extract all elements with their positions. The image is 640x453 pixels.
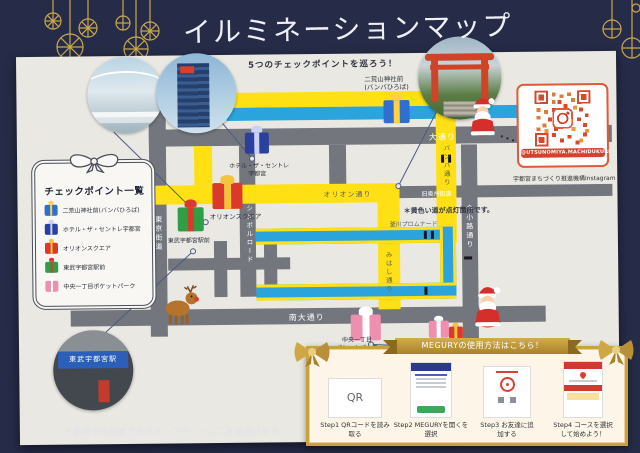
- instagram-handle: @UTSUNOMIYA.MACHIDUKURI: [521, 148, 605, 158]
- gift-icon-blue-yellow: [45, 205, 58, 216]
- gift-icon-orion-square: [212, 183, 242, 209]
- checkpoint-item: オリオンスクエア: [45, 242, 145, 254]
- station-sign: 東武宇都宮駅: [58, 351, 129, 369]
- step1-caption: Step1QRコードを読み取る: [317, 421, 393, 439]
- checkpoint-label: オリオンスクエア: [63, 243, 111, 253]
- step3-caption: Step3お友達に追加する: [478, 421, 536, 439]
- step4-screenshot-thumbnail: [563, 361, 603, 418]
- marker-label-line: (バンバひろば): [364, 83, 408, 91]
- marker-label-futaarayama: 二荒山神社前 (バンバひろば): [364, 75, 409, 92]
- checkpoint-label: 東武宇都宮駅前: [63, 262, 105, 271]
- steps-row: QR Step1QRコードを読み取る Step2MEGURYを開くを選択 St: [317, 361, 621, 439]
- qr-code: [534, 90, 591, 147]
- gift-icon-green: [45, 262, 58, 273]
- checkpoint-item: 東武宇都宮駅前: [45, 261, 145, 273]
- checkpoint-label: 二荒山神社前(バンバひろば): [63, 205, 140, 215]
- step3-screenshot-thumbnail: [483, 366, 531, 418]
- step-number: Step2: [394, 421, 413, 429]
- photo-hotel: [156, 53, 237, 134]
- step-item-4: Step4コースを選択して始めよう！: [545, 361, 621, 439]
- step-number: Step1: [320, 421, 339, 429]
- step-label: お友達に追加する: [497, 421, 533, 438]
- photo-tobu-station: 東武宇都宮駅: [53, 330, 134, 411]
- checkpoint-panel-title: チェックポイント一覧: [44, 183, 144, 198]
- step-number: Step4: [553, 421, 572, 429]
- marker-label-line: 中央一丁目: [342, 336, 372, 343]
- checkpoint-label: ホテル・ザ・セントレ宇都宮: [63, 224, 141, 234]
- poster-title: イルミネーションマップ: [183, 5, 484, 51]
- photo-orion-square: [87, 57, 164, 134]
- step-label: QRコードを読み取る: [341, 421, 390, 438]
- step2-screenshot-thumbnail: [410, 362, 452, 418]
- footnote: ＊期間中は何度でもスタンプラリーにご参加頂けます。: [64, 426, 288, 437]
- gift-icon-red: [45, 243, 58, 254]
- steps-panel: QR Step1QRコードを読み取る Step2MEGURYを開くを選択 St: [306, 346, 628, 446]
- instagram-icon: [553, 109, 572, 128]
- step2-caption: Step2MEGURYを開くを選択: [393, 421, 469, 439]
- gift-icon-decorative: [429, 321, 449, 338]
- poster-canvas: 5つのチェックポイントを巡ろう！ 大通り オリオン通り シンボルロ: [0, 0, 640, 453]
- gold-bow-icon: [292, 338, 332, 368]
- step-item-1: QR Step1QRコードを読み取る: [317, 361, 393, 439]
- santa-icon: [468, 280, 505, 330]
- reindeer-icon: [160, 284, 204, 324]
- gift-icon-pink: [45, 281, 58, 292]
- step1-qr-thumbnail: QR: [328, 378, 382, 418]
- step-item-3: Step3お友達に追加する: [469, 361, 545, 439]
- step-number: Step3: [480, 421, 499, 429]
- step4-caption: Step4コースを選択して始めよう！: [550, 421, 616, 439]
- checkpoint-label: 中央一丁目ポケットパーク: [63, 281, 135, 291]
- step-item-2: Step2MEGURYを開くを選択: [393, 361, 469, 439]
- gift-icon-futaarayama: [383, 100, 409, 123]
- marker-label-line: 宇都宮: [248, 170, 266, 177]
- marker-label-hotel: ホテル・ザ・セントレ 宇都宮: [229, 162, 285, 178]
- checkpoint-panel: チェックポイント一覧 二荒山神社前(バンバひろば) ホテル・ザ・セントレ宇都宮 …: [34, 162, 154, 307]
- gold-bow-icon: [596, 336, 636, 366]
- checkpoint-item: 二荒山神社前(バンバひろば): [45, 204, 145, 216]
- gift-icon-hotel: [245, 133, 269, 154]
- marker-label-line: ホテル・ザ・セントレ: [229, 162, 289, 170]
- qr-caption: 宇都宮まちづくり推進機構Instagram: [505, 173, 623, 183]
- step-label: MEGURYを開くを選択: [415, 421, 469, 438]
- steps-banner: MEGURYの使用方法はこちら！: [395, 338, 570, 354]
- qr-panel: @UTSUNOMIYA.MACHIDUKURI: [516, 83, 609, 168]
- ribbon-bow-icon: [63, 149, 125, 174]
- marker-label-orion-square: オリオンスクエア: [210, 213, 262, 222]
- checkpoint-item: ホテル・ザ・セントレ宇都宮: [45, 223, 145, 235]
- gift-icon-decorative: [449, 326, 463, 338]
- gift-icon-tobu-station: [178, 207, 204, 231]
- checkpoint-item: 中央一丁目ポケットパーク: [45, 280, 145, 292]
- gift-icon-blue: [45, 224, 58, 235]
- santa-icon: [464, 92, 498, 138]
- marker-label-tobu-station: 東武宇都宮駅前: [168, 237, 210, 245]
